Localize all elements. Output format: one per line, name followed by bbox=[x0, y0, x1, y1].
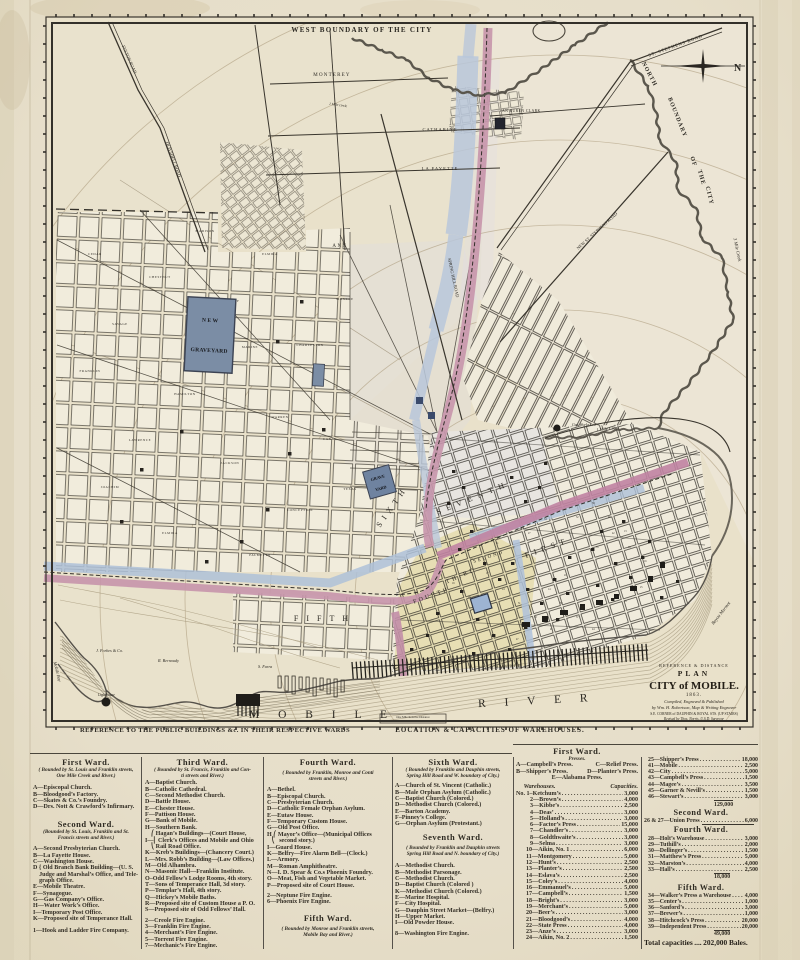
svg-text:R. Bernoudy: R. Bernoudy bbox=[157, 658, 179, 663]
svg-text:M O B I L E: M O B I L E bbox=[249, 709, 395, 721]
svg-text:HAMILTON: HAMILTON bbox=[174, 392, 196, 396]
svg-text:FIFTH: FIFTH bbox=[294, 614, 356, 623]
svg-text:PALMETTO: PALMETTO bbox=[249, 553, 271, 557]
svg-text:ELMIRA: ELMIRA bbox=[162, 531, 178, 535]
svg-text:J. Forbes & Co.: J. Forbes & Co. bbox=[96, 648, 123, 653]
svg-text:ELMIRA: ELMIRA bbox=[262, 252, 278, 256]
svg-text:LAWRENCE: LAWRENCE bbox=[129, 438, 151, 442]
svg-text:REFERENCE & DISTANCE: REFERENCE & DISTANCE bbox=[659, 663, 729, 668]
svg-text:VAN BUREN CLARK: VAN BUREN CLARK bbox=[499, 109, 540, 113]
svg-text:ANN: ANN bbox=[332, 244, 347, 249]
svg-text:PLAN: PLAN bbox=[678, 669, 710, 678]
svg-text:REFERENCE TO THE PUBLIC BU: REFERENCE TO THE PUBLIC BUILDINGS &c. IN… bbox=[80, 727, 350, 734]
svg-text:SAVAGE: SAVAGE bbox=[112, 322, 128, 326]
svg-text:CHESTNUT: CHESTNUT bbox=[149, 275, 170, 279]
svg-text:MONROE: MONROE bbox=[336, 297, 353, 301]
svg-text:N: N bbox=[734, 63, 742, 74]
svg-text:S. Farra: S. Farra bbox=[258, 664, 272, 669]
svg-text:MARINE: MARINE bbox=[242, 345, 258, 349]
svg-text:JOACHIM: JOACHIM bbox=[101, 485, 119, 489]
svg-text:CHARLESTON: CHARLESTON bbox=[296, 343, 323, 347]
svg-text:JACKSON: JACKSON bbox=[221, 461, 240, 465]
svg-text:CANAL: CANAL bbox=[323, 437, 337, 441]
svg-text:Gas Works: Gas Works bbox=[572, 422, 590, 427]
svg-text:CEDAR: CEDAR bbox=[88, 252, 102, 256]
svg-text:MONTEREY: MONTEREY bbox=[313, 73, 350, 78]
svg-text:WEST BOUNDARY OF THE CITY: WEST BOUNDARY OF THE CITY bbox=[291, 26, 432, 34]
svg-text:CONCEPTION: CONCEPTION bbox=[287, 508, 313, 512]
svg-text:1863.: 1863. bbox=[686, 693, 702, 698]
svg-text:TEXAS: TEXAS bbox=[343, 487, 356, 491]
svg-text:Lighthouse: Lighthouse bbox=[97, 693, 115, 697]
svg-text:S.E. CORNER of DAUPHIN & ROYAL: S.E. CORNER of DAUPHIN & ROYAL STS. (UP … bbox=[650, 712, 738, 716]
svg-text:FRANKLIN: FRANKLIN bbox=[80, 369, 101, 373]
svg-text:CATHARINE: CATHARINE bbox=[422, 127, 457, 132]
svg-text:WARREN: WARREN bbox=[271, 415, 288, 419]
svg-text:CITY of MOBILE.: CITY of MOBILE. bbox=[649, 680, 739, 692]
svg-text:LA FAYETTE: LA FAYETTE bbox=[422, 166, 459, 171]
svg-text:NEW: NEW bbox=[202, 318, 220, 325]
